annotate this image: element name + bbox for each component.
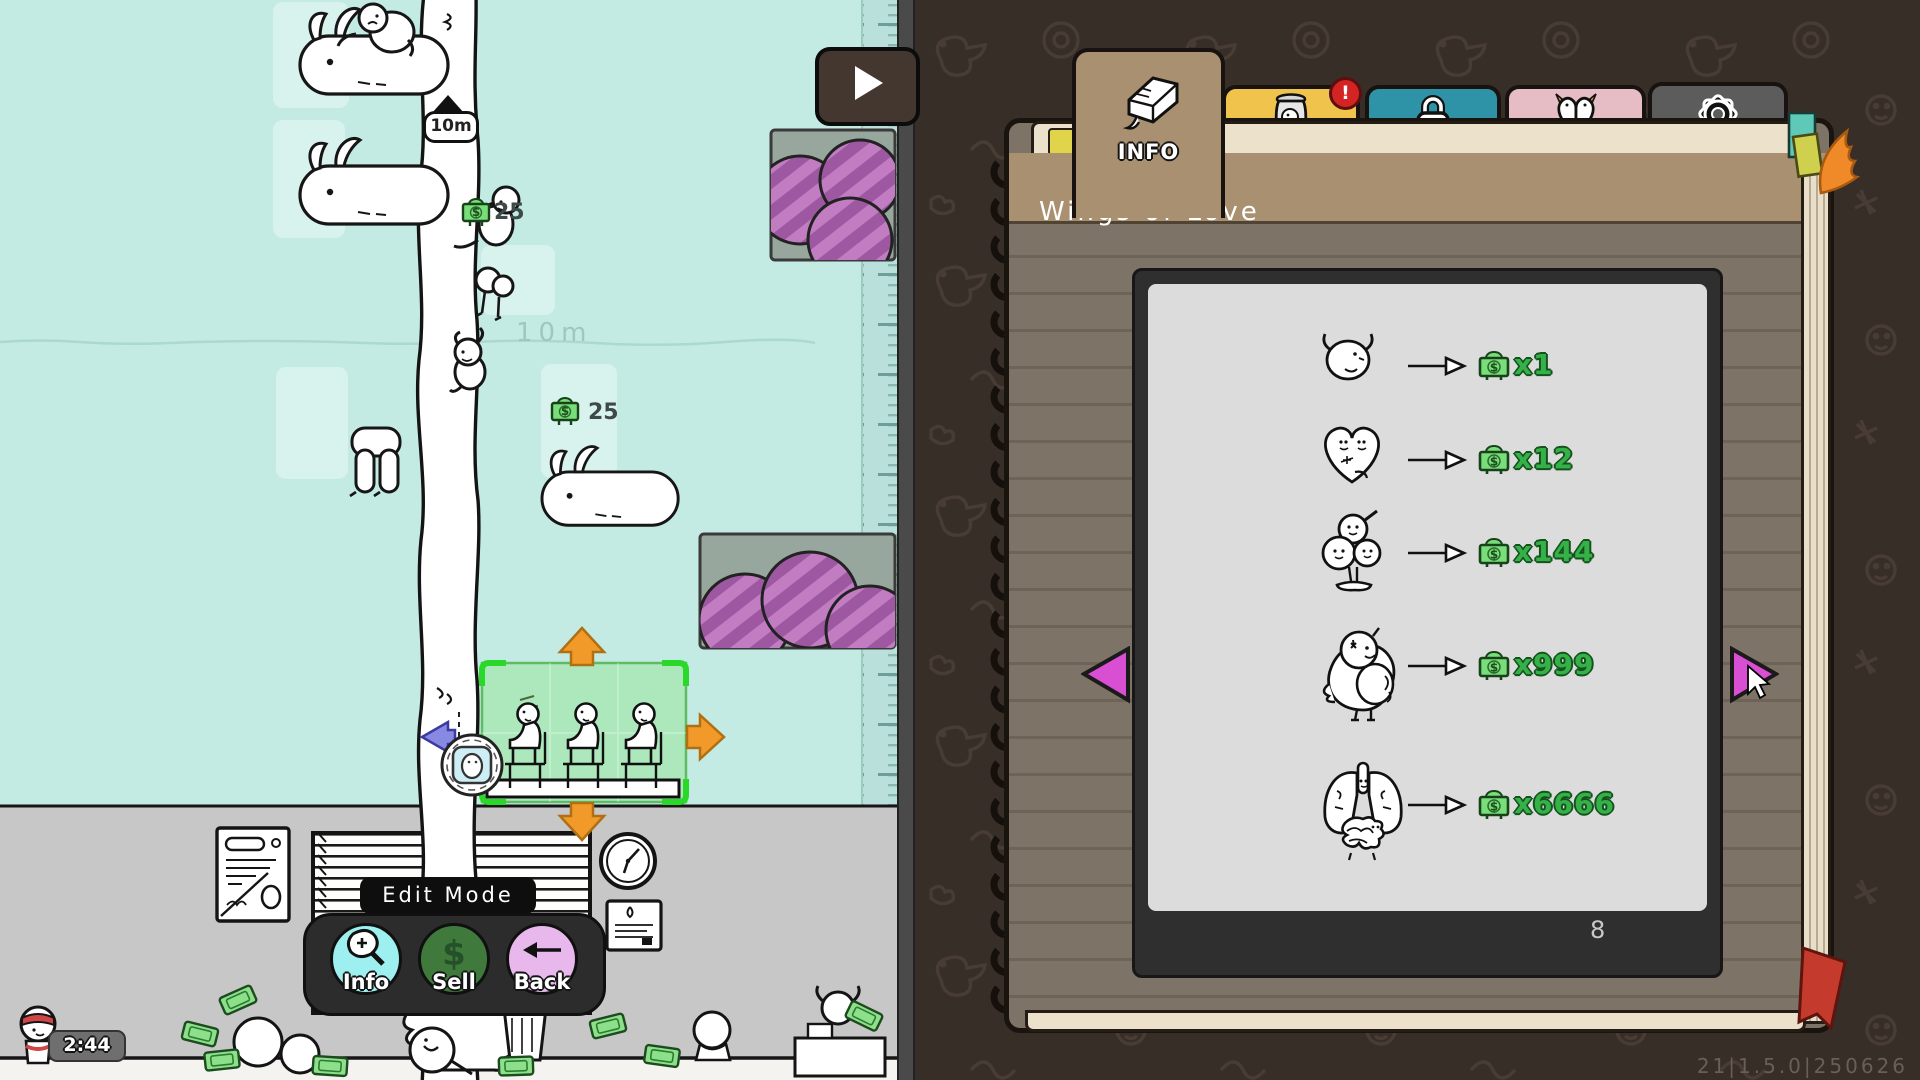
back-button-label: Back — [499, 970, 585, 994]
version-label: 21|1.5.0|250626 — [1697, 1054, 1908, 1078]
sell-button[interactable]: $ Sell — [418, 923, 490, 995]
money-badge-icon: $ — [1478, 650, 1510, 682]
creature-triple-stage-3 — [1315, 509, 1393, 595]
money-badge-icon: $ — [1478, 537, 1510, 569]
page-stack-right — [1801, 163, 1831, 1024]
creature-lungs-stage-5 — [1315, 761, 1411, 861]
arrow-right-icon — [1406, 449, 1468, 471]
certificate-large — [217, 828, 289, 921]
money-marker-amount: 25 — [588, 400, 619, 425]
svg-text:$: $ — [1490, 661, 1498, 675]
selection-zone[interactable] — [482, 663, 686, 802]
money-badge-icon: $ — [1478, 789, 1510, 821]
book-icon — [1107, 64, 1191, 136]
countdown-timer: 2:44 — [48, 1030, 126, 1062]
certificate-small — [607, 901, 661, 950]
payout-multiplier: x12 — [1514, 442, 1574, 475]
payout-multiplier: x144 — [1514, 535, 1595, 568]
depth-marker-label: 10m — [516, 318, 592, 348]
arrow-right-icon — [1406, 794, 1468, 816]
evolution-frame: $ x1 — [1132, 268, 1723, 978]
arrow-right-icon — [1406, 542, 1468, 564]
page-stack-bottom — [1025, 1010, 1806, 1032]
bookmark-ribbon — [1793, 944, 1863, 1034]
svg-text:$: $ — [1490, 548, 1498, 562]
prev-page-button[interactable] — [1081, 646, 1131, 704]
dna-notification-badge: ! — [1329, 77, 1362, 110]
svg-text:$: $ — [1490, 361, 1498, 375]
tab-info-active[interactable]: INFO — [1072, 48, 1225, 218]
incubator-nest[interactable] — [442, 735, 502, 795]
mouse-cursor — [1746, 664, 1772, 700]
info-button-label: Info — [323, 970, 409, 994]
back-arrow-icon — [509, 926, 575, 974]
dollar-icon: $ — [421, 934, 487, 974]
svg-text:$: $ — [1490, 800, 1498, 814]
legs-creature[interactable] — [350, 428, 400, 496]
dollar-glyph: $ — [472, 205, 480, 219]
svg-text:$: $ — [1490, 455, 1498, 469]
edit-mode-title: Edit Mode — [360, 877, 536, 914]
creature-bird-stage-4 — [1315, 622, 1411, 722]
creature-chick-stage-1 — [1315, 322, 1381, 388]
money-badge-icon: $ — [1478, 350, 1510, 382]
money-marker-amount: 25 — [494, 200, 525, 225]
payout-multiplier: x1 — [1514, 348, 1554, 381]
tab-info-label: INFO — [1076, 140, 1221, 164]
game-world-view: $ $ — [0, 0, 898, 1080]
bookmark-feather — [1785, 97, 1875, 207]
payout-multiplier: x999 — [1514, 648, 1595, 681]
creature-heart-stage-2 — [1315, 416, 1389, 490]
play-speed-button[interactable] — [815, 47, 920, 126]
arrow-right-icon — [1406, 655, 1468, 677]
pane-divider — [897, 0, 915, 1080]
notebook-panel: DNA ! Unlock STATS — [911, 0, 1920, 1080]
sell-button-label: Sell — [411, 970, 497, 994]
arrow-right-icon — [1406, 355, 1468, 377]
game-screen: $ $ — [0, 0, 1920, 1080]
page-number: 8 — [1590, 916, 1605, 944]
money-badge-icon: $ — [1478, 444, 1510, 476]
info-button[interactable]: Info — [330, 923, 402, 995]
payout-multiplier: x6666 — [1514, 787, 1615, 820]
cloud-block-top — [756, 130, 898, 282]
evolution-page: $ x1 — [1148, 284, 1707, 911]
wall-clock — [601, 834, 655, 888]
notebook-cover: Wings of Love — [1004, 118, 1834, 1033]
dollar-glyph: $ — [561, 404, 569, 418]
height-flag: 10m — [423, 111, 479, 143]
edit-mode-panel: Info $ Sell Back — [303, 913, 606, 1016]
play-icon — [855, 66, 883, 100]
back-button[interactable]: Back — [506, 923, 578, 995]
magnifier-icon — [333, 926, 399, 974]
